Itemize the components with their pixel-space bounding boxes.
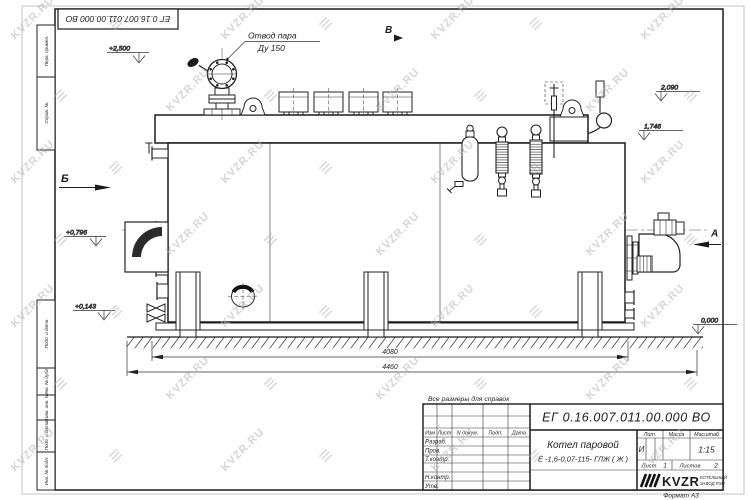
margin-field-vzam-inv: Взам. инв. № xyxy=(44,393,49,421)
row-utv: Утв. xyxy=(424,484,439,490)
brand-sub1: КОТЕЛЬНЫЙ xyxy=(700,475,728,480)
svg-text:+2,500: +2,500 xyxy=(109,46,130,53)
col-list: Лист xyxy=(437,431,452,437)
view-v-letter: В xyxy=(385,25,392,36)
view-b-letter: Б xyxy=(61,173,69,185)
boiler-assembly-drawing: Перв. примен. Справ. № Подп. и дата Инв.… xyxy=(0,0,750,500)
callout-line2: Ду 150 xyxy=(257,43,285,53)
burner-gearbox xyxy=(637,256,652,272)
top-doc-number-text: ЕГ 0.16.007.011.00.000 ВО xyxy=(65,14,170,24)
blueprint-sheet-view: Перв. примен. Справ. № Подп. и дата Инв.… xyxy=(0,0,750,500)
margin-field-podp-data-2: Подп. и дата xyxy=(44,421,49,450)
sheet-value: 1 xyxy=(663,463,667,470)
svg-text:+0,143: +0,143 xyxy=(75,304,96,311)
margin-field-sprav-no: Справ. № xyxy=(44,103,49,124)
row-prov: Пров. xyxy=(425,449,441,455)
product-model: Е -1,6-0,07-115- ГЛЖ ( Ж ) xyxy=(538,455,629,464)
burner-motor xyxy=(654,220,676,235)
sheets-value: 2 xyxy=(713,463,718,470)
svg-text:0,000: 0,000 xyxy=(701,318,718,325)
title-block: Все размеры для справок Изм Лист N докум… xyxy=(423,395,728,500)
col-podp: Подп. xyxy=(488,431,502,437)
reference-note: Все размеры для справок xyxy=(428,395,510,403)
dim-4080-label: 4080 xyxy=(382,349,398,356)
view-a-letter: А xyxy=(710,229,718,240)
lit-value: И xyxy=(639,445,645,454)
product-title: Котел паровой xyxy=(547,440,619,451)
margin-field-inv-dubl: Инв. № дубл. xyxy=(44,367,49,395)
row-razrab: Разраб. xyxy=(425,440,447,446)
mass-label: Масса xyxy=(669,432,685,438)
scale-label: Масштаб xyxy=(694,432,720,438)
support-leg xyxy=(578,272,602,337)
col-izm: Изм xyxy=(425,431,435,437)
upper-drum-casing xyxy=(155,115,588,143)
svg-text:+0,796: +0,796 xyxy=(66,230,87,237)
front-burner-box xyxy=(125,222,168,272)
lit-label: Лит. xyxy=(643,432,656,438)
sheet-label: Лист xyxy=(641,464,657,470)
svg-text:1,746: 1,746 xyxy=(644,124,661,131)
support-leg xyxy=(364,272,388,337)
margin-field-perv-primen: Перв. примен. xyxy=(44,36,49,67)
col-data: Дата xyxy=(511,431,526,437)
col-ndoc: N докум. xyxy=(457,431,478,437)
top-doc-number-stamp: ЕГ 0.16.007.011.00.000 ВО xyxy=(58,9,178,29)
callout-line1: Отвод пара xyxy=(248,31,297,41)
doc-number: ЕГ 0.16.007.011.00.000 ВО xyxy=(542,411,711,425)
row-tkontr: Т.контр. xyxy=(425,457,449,463)
support-leg xyxy=(176,272,200,337)
svg-text:2,090: 2,090 xyxy=(660,85,678,92)
boiler-base-rail xyxy=(156,323,634,330)
row-nkontr: Н.контр. xyxy=(425,475,450,481)
scale-value: 1:15 xyxy=(698,445,715,455)
dim-4460-label: 4460 xyxy=(382,364,398,371)
ground-hatching xyxy=(127,338,703,349)
sheets-label: Листов xyxy=(678,464,700,470)
brand-text: KVZR xyxy=(662,474,700,489)
margin-field-inv-podl: Инв. № подл. xyxy=(44,457,49,486)
margin-field-podp-data-1: Подп. и дата xyxy=(44,319,49,348)
brand-sub2: ЗАВОД РЭП xyxy=(700,481,726,486)
format-note: Формат А3 xyxy=(663,493,699,500)
